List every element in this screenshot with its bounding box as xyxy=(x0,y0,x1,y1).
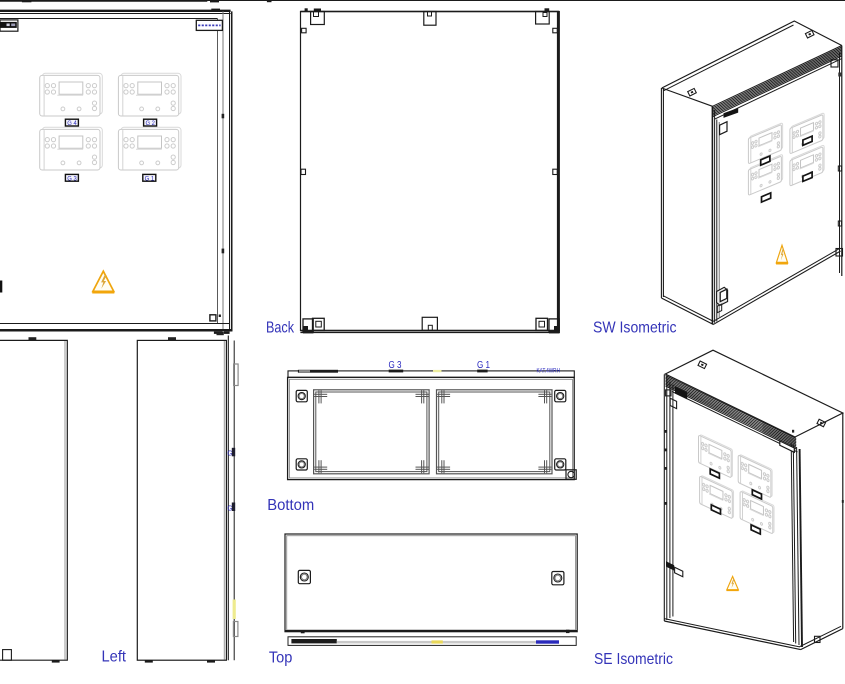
svg-text:Left: Left xyxy=(102,649,127,666)
svg-text:G 2: G 2 xyxy=(145,120,155,127)
svg-text:KAT.4WRH: KAT.4WRH xyxy=(537,368,561,375)
svg-text:SE Isometric: SE Isometric xyxy=(594,651,673,668)
svg-text:SW Isometric: SW Isometric xyxy=(593,320,677,337)
svg-text:G 1: G 1 xyxy=(477,359,490,371)
svg-text:G 1: G 1 xyxy=(145,175,155,182)
svg-text:Top: Top xyxy=(269,650,293,667)
svg-text:G 3: G 3 xyxy=(67,175,77,182)
svg-text:G 3: G 3 xyxy=(389,359,402,371)
svg-text:Bottom: Bottom xyxy=(267,497,314,514)
svg-text:G 4: G 4 xyxy=(67,120,77,127)
svg-text:Back: Back xyxy=(266,320,295,337)
